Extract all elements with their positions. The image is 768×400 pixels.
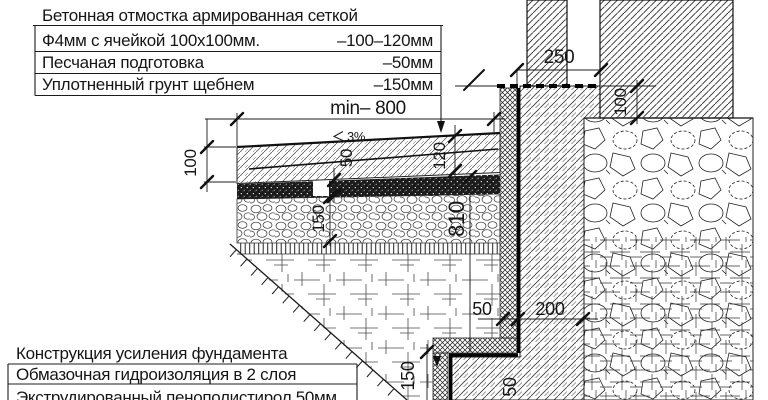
legend-row-value: –100–120мм xyxy=(337,31,433,50)
compacted-soil-band xyxy=(237,243,500,254)
legend-row-label: Ф4мм с ячейкой 100х100мм. xyxy=(42,31,260,50)
legend-row-label: Песчаная подготовка xyxy=(42,53,205,72)
foundation-reinforcement-grid xyxy=(584,237,753,400)
inner-wall xyxy=(527,0,567,86)
dim-50-bottom: 50 xyxy=(500,377,520,397)
legend-row-label: Конструкция усиления фундамента xyxy=(16,344,288,363)
dim-150-stone: 150 xyxy=(309,205,328,232)
legend-row-label: Уплотненный грунт щебнем xyxy=(42,75,254,94)
blind-area-foundation-section: min– 800 3% 100 50 150 120 810 250 100 5… xyxy=(0,0,768,400)
construction-drawing: min– 800 3% 100 50 150 120 810 250 100 5… xyxy=(0,0,768,400)
legend-top-title: Бетонная отмостка армированная сеткой xyxy=(42,6,358,25)
legend-row-label: Обмазочная гидроизоляция в 2 слоя xyxy=(16,365,296,384)
dim-810: 810 xyxy=(444,201,469,237)
rubble-foundation xyxy=(584,118,753,400)
dim-250: 250 xyxy=(544,47,575,68)
legend-row-value: –150мм xyxy=(374,75,433,94)
dim-120: 120 xyxy=(430,142,449,169)
dim-100-left: 100 xyxy=(181,149,200,176)
dim-100-right: 100 xyxy=(611,88,630,115)
dim-200: 200 xyxy=(535,299,564,319)
blind-area-leader-arrow xyxy=(437,121,445,133)
dim-150-step: 150 xyxy=(398,361,418,390)
angle-icon xyxy=(334,132,343,141)
legend-row-value: –50мм xyxy=(383,53,433,72)
legend-row-label: Экструдированный пенополистирол 50мм xyxy=(16,388,337,400)
dim-50-sand: 50 xyxy=(337,149,356,167)
dim-slope: 3% xyxy=(347,129,366,144)
legend-bottom: Конструкция усиления фундамента Обмазочн… xyxy=(8,344,357,400)
dim-50-insulation: 50 xyxy=(472,299,492,319)
legend-top: Бетонная отмостка армированная сеткой Ф4… xyxy=(33,6,443,96)
dim-min-800: min– 800 xyxy=(330,98,406,119)
